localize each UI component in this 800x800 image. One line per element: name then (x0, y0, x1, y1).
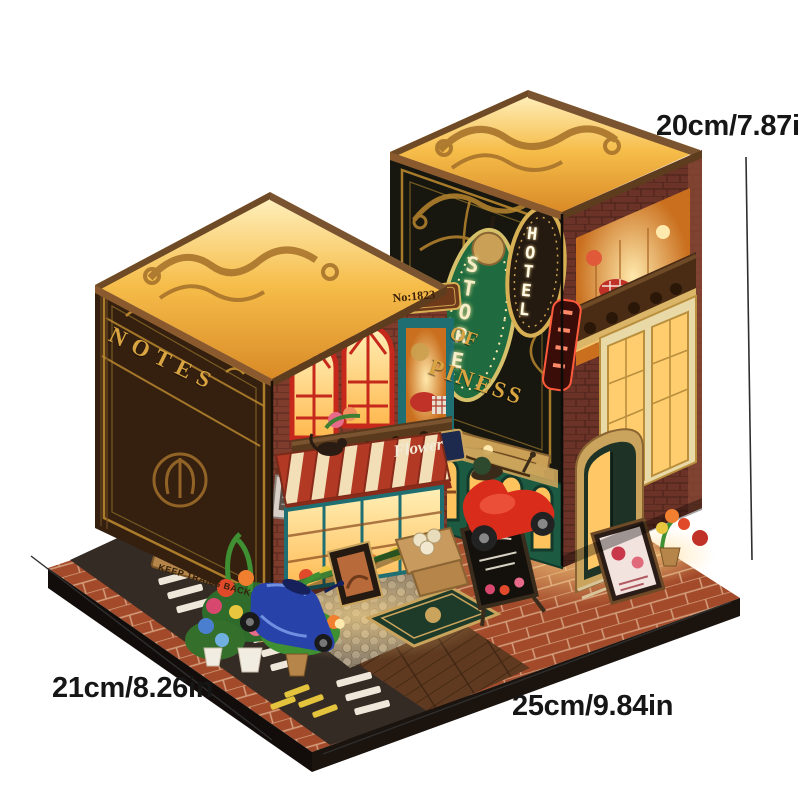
width-dimension-label: 25cm/9.84in (512, 690, 673, 723)
depth-dimension-label: 21cm/8.26in (52, 672, 213, 705)
product-photo: 20cm/7.87in 21cm/8.26in 25cm/9.84in NOTE… (0, 0, 800, 800)
height-dimension-label: 20cm/7.87in (656, 110, 800, 143)
height-dimension-line (746, 157, 752, 560)
